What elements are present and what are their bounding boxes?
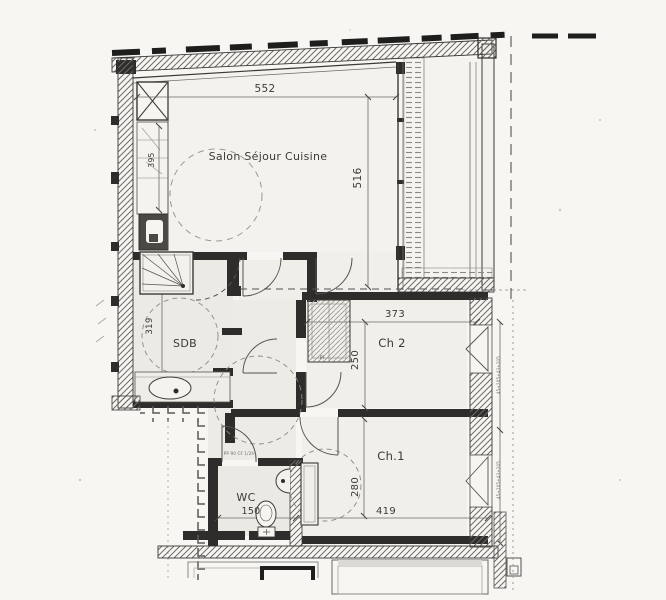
- dim-ch1-height: 280: [350, 477, 361, 497]
- exterior-right-wall: [466, 298, 492, 547]
- room-label-ch2: Ch 2: [378, 336, 406, 350]
- room-label-ch1: Ch.1: [377, 449, 405, 463]
- closet-ch2: [308, 300, 350, 362]
- wc-door-annotation: PP 90 CF 1/2h: [224, 451, 255, 456]
- closet-label: Pl: [320, 355, 325, 361]
- dim-sdb-height: 319: [145, 317, 155, 334]
- window-ch2: [466, 325, 492, 373]
- dim-salon-width: 552: [255, 83, 276, 95]
- balcony-bottom-wall: [398, 278, 494, 292]
- wardrobe-ch1: [301, 463, 318, 525]
- dim-ch2-width: 373: [385, 309, 405, 320]
- dim-ch1-width: 419: [376, 506, 396, 517]
- balcony-decking: [404, 58, 424, 278]
- floorplan-page: Salon Séjour Cuisine SDB Ch 2 Ch.1 WC Pl…: [0, 0, 666, 600]
- balcony-right-wall: [482, 44, 494, 290]
- washbasin: [149, 377, 191, 399]
- dim-wc-width: 150: [241, 506, 260, 517]
- dim-salon-height: 516: [352, 168, 364, 189]
- window-ch1: [466, 455, 492, 507]
- floorplan-drawing: Salon Séjour Cuisine SDB Ch 2 Ch.1 WC Pl…: [0, 0, 666, 600]
- property-line: [511, 36, 664, 592]
- dim-ch2-height: 250: [350, 350, 361, 370]
- window-dim-annotation-upper: 45+205+43+205: [496, 356, 501, 394]
- exterior-left-wall: [96, 58, 133, 408]
- room-label-sdb: SDB: [173, 337, 197, 350]
- room-label-wc: WC: [236, 491, 255, 504]
- wc-right-wall: [290, 460, 302, 546]
- dim-kitchen: 395: [147, 152, 156, 167]
- tile-border-row: [140, 406, 210, 422]
- window-dim-annotation-lower: 45+205+43+205: [496, 461, 501, 499]
- left-margin-ticks: [96, 300, 106, 342]
- room-label-salon: Salon Séjour Cuisine: [209, 150, 328, 163]
